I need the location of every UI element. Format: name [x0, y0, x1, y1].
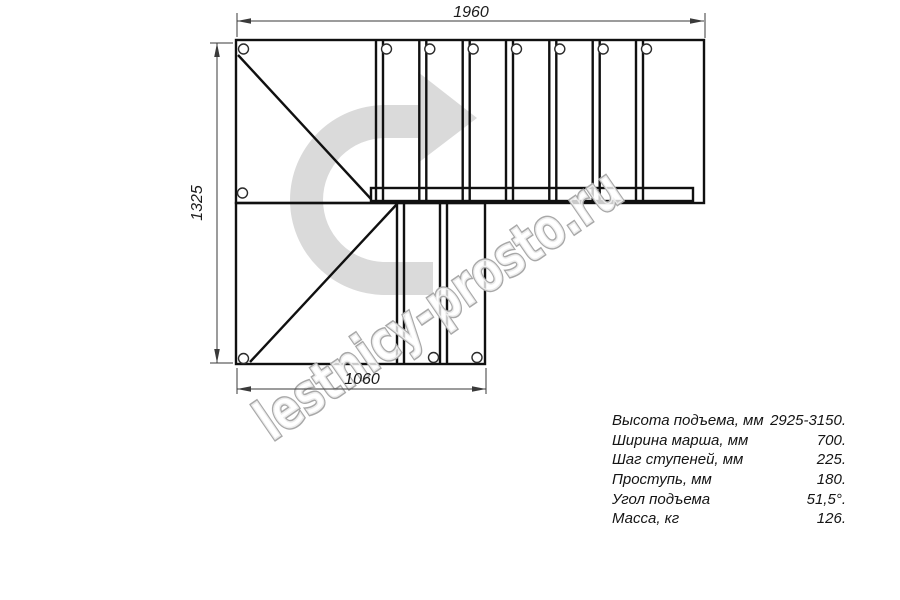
spec-row: Шаг ступеней, мм 225. [612, 450, 846, 470]
spec-label: Проступь, мм [612, 470, 712, 490]
mounting-hole [429, 353, 439, 363]
dimension-arrowhead [214, 43, 220, 57]
spec-value: 225. [817, 450, 846, 470]
mounting-hole [425, 44, 435, 54]
spec-value: 2925-3150. [770, 411, 846, 431]
mounting-hole [642, 44, 652, 54]
spec-value: 700. [817, 431, 846, 451]
specifications-list: Высота подъема, мм 2925-3150. Ширина мар… [612, 411, 846, 529]
spec-value: 51,5°. [807, 490, 846, 510]
spec-row: Угол подъема 51,5°. [612, 490, 846, 510]
mounting-hole [382, 44, 392, 54]
spec-row: Высота подъема, мм 2925-3150. [612, 411, 846, 431]
mounting-hole [555, 44, 565, 54]
spec-row: Проступь, мм 180. [612, 470, 846, 490]
dimension-left-value: 1325 [189, 185, 206, 221]
mounting-hole [238, 188, 248, 198]
dimension-top-value: 1960 [453, 4, 489, 21]
dimension-arrowhead [214, 349, 220, 363]
mounting-hole [598, 44, 608, 54]
dimension-arrowhead [690, 18, 704, 24]
mounting-hole [472, 353, 482, 363]
spec-row: Масса, кг 126. [612, 509, 846, 529]
dimension-bottom-value: 1060 [344, 371, 380, 388]
spec-value: 126. [817, 509, 846, 529]
dimension-top-width: 1960 [237, 4, 705, 38]
mounting-hole [239, 354, 249, 364]
spec-value: 180. [817, 470, 846, 490]
spec-label: Высота подъема, мм [612, 411, 764, 431]
spec-label: Ширина марша, мм [612, 431, 748, 451]
stair-drawing-page: lestnicy-prosto.ru 1960 1325 [0, 0, 900, 600]
dimension-arrowhead [237, 386, 251, 392]
dimension-arrowhead [472, 386, 486, 392]
dimension-left-height: 1325 [189, 43, 233, 363]
dimension-arrowhead [237, 18, 251, 24]
spec-label: Масса, кг [612, 509, 679, 529]
mounting-hole [468, 44, 478, 54]
spec-label: Угол подъема [612, 490, 710, 510]
spec-row: Ширина марша, мм 700. [612, 431, 846, 451]
spec-label: Шаг ступеней, мм [612, 450, 743, 470]
mounting-hole [512, 44, 522, 54]
mounting-hole [239, 44, 249, 54]
